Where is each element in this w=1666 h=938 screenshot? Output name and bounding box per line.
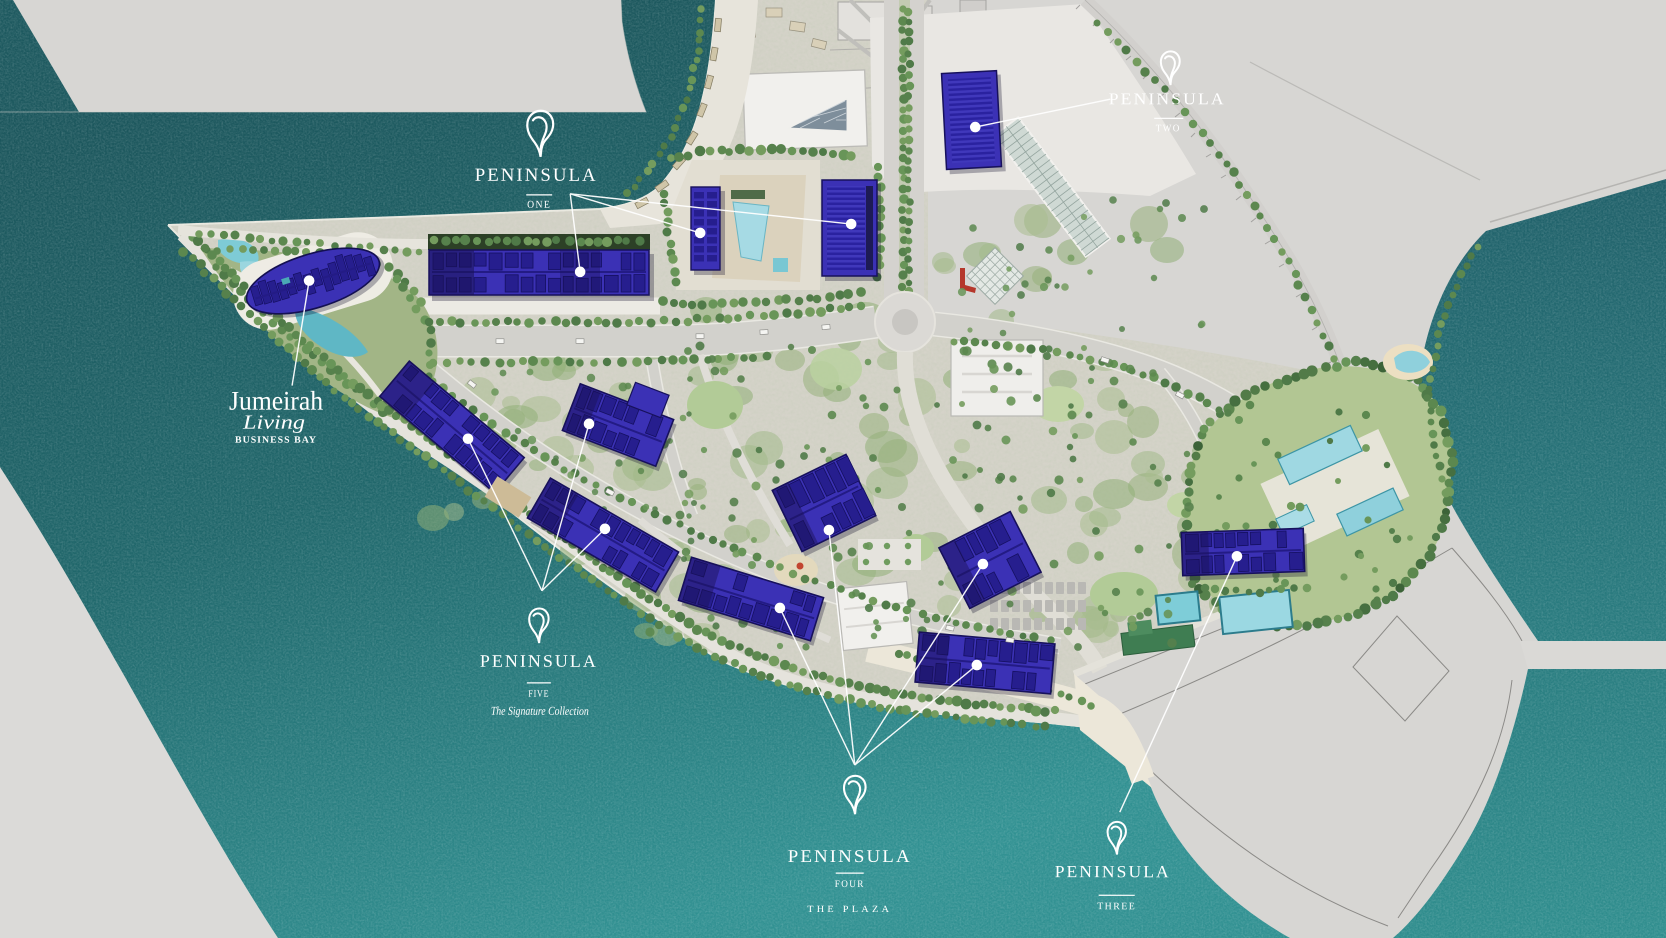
svg-text:Living: Living [242, 412, 305, 434]
svg-text:FIVE: FIVE [528, 689, 549, 700]
svg-text:BUSINESS BAY: BUSINESS BAY [235, 436, 317, 446]
svg-text:PENINSULA: PENINSULA [788, 846, 912, 866]
svg-text:The Signature Collection: The Signature Collection [491, 704, 589, 718]
svg-text:PENINSULA: PENINSULA [1109, 89, 1226, 108]
svg-text:PENINSULA: PENINSULA [480, 651, 598, 671]
svg-text:PENINSULA: PENINSULA [1055, 862, 1171, 881]
svg-text:THE PLAZA: THE PLAZA [807, 905, 892, 915]
svg-text:ONE: ONE [527, 200, 551, 211]
svg-text:PENINSULA: PENINSULA [475, 166, 598, 186]
svg-text:FOUR: FOUR [835, 879, 865, 890]
svg-text:THREE: THREE [1097, 901, 1136, 912]
svg-text:TWO: TWO [1156, 123, 1181, 134]
